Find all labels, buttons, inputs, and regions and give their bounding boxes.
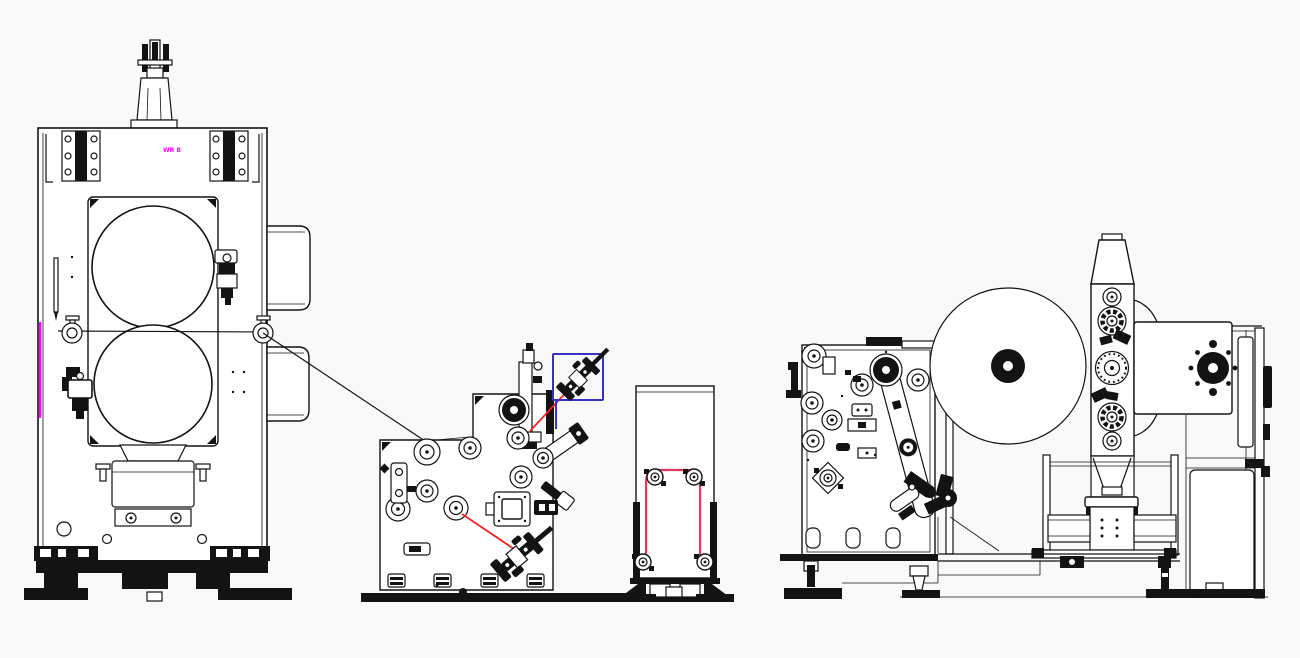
unit-roller	[459, 437, 481, 459]
top-bolt-plate-left	[62, 131, 100, 181]
leveling-foot	[1146, 556, 1194, 598]
unit-roller	[416, 480, 438, 502]
level-gauge	[54, 258, 58, 321]
core-pedestal	[1032, 497, 1176, 558]
side-duct-upper	[267, 226, 310, 310]
winder-roller	[822, 410, 842, 430]
knife-unit-upper	[553, 340, 617, 404]
lower-roll	[94, 325, 212, 443]
side-duct-lower	[267, 347, 309, 421]
press-label: WR B	[163, 147, 181, 154]
leveling-foot	[902, 566, 940, 598]
coater-roll	[499, 395, 529, 425]
web-turn-stand	[620, 386, 734, 602]
winder-roller	[801, 392, 823, 414]
pivot-roller	[870, 354, 902, 386]
top-bolt-plate-right	[210, 131, 248, 181]
winder-roller	[907, 369, 929, 391]
leveling-foot	[1060, 556, 1084, 568]
coating-unit	[361, 340, 643, 602]
wound-roll	[930, 288, 1086, 444]
unit-roller	[533, 448, 553, 468]
unit-roller	[414, 439, 440, 465]
leveling-foot	[784, 561, 842, 599]
engineering-drawing-canvas: WR B	[0, 0, 1300, 658]
turret-winder	[780, 234, 1272, 599]
unit-roller	[510, 466, 532, 488]
upper-roll	[92, 206, 214, 328]
unit-roller	[507, 427, 529, 449]
winder-roller	[802, 430, 824, 452]
hydraulic-cylinder	[131, 40, 177, 128]
stand-base	[620, 578, 734, 602]
calender-press: WR B	[24, 40, 310, 601]
